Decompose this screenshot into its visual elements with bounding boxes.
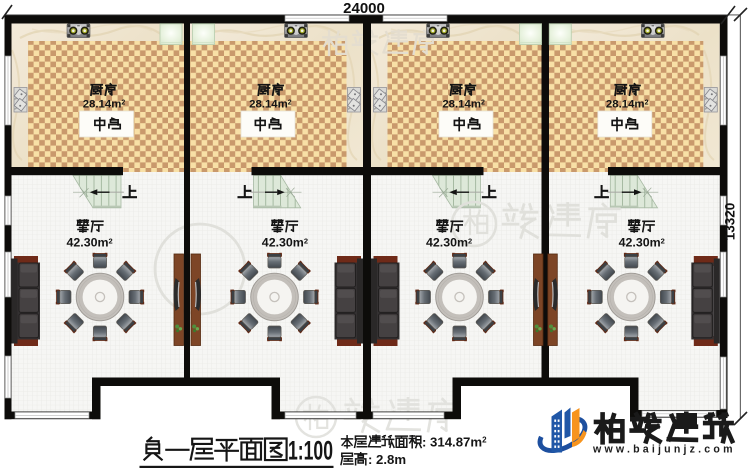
svg-text:42.30m2: 42.30m2 (426, 236, 472, 250)
svg-text:28.14m2: 28.14m2 (442, 98, 485, 110)
svg-text:24000: 24000 (343, 0, 385, 17)
svg-text:28.14m2: 28.14m2 (606, 98, 649, 110)
svg-text:42.30m2: 42.30m2 (66, 236, 112, 250)
svg-text:28.14m2: 28.14m2 (249, 98, 292, 110)
svg-text:42.30m2: 42.30m2 (619, 236, 665, 250)
svg-text:1:100: 1:100 (288, 436, 333, 466)
svg-text:: 2.8m: : 2.8m (368, 452, 406, 467)
svg-text:: 314.87m2: : 314.87m2 (422, 435, 487, 450)
svg-text:42.30m2: 42.30m2 (262, 236, 308, 250)
svg-text:13320: 13320 (723, 203, 738, 241)
svg-text:28.14m2: 28.14m2 (83, 98, 126, 110)
